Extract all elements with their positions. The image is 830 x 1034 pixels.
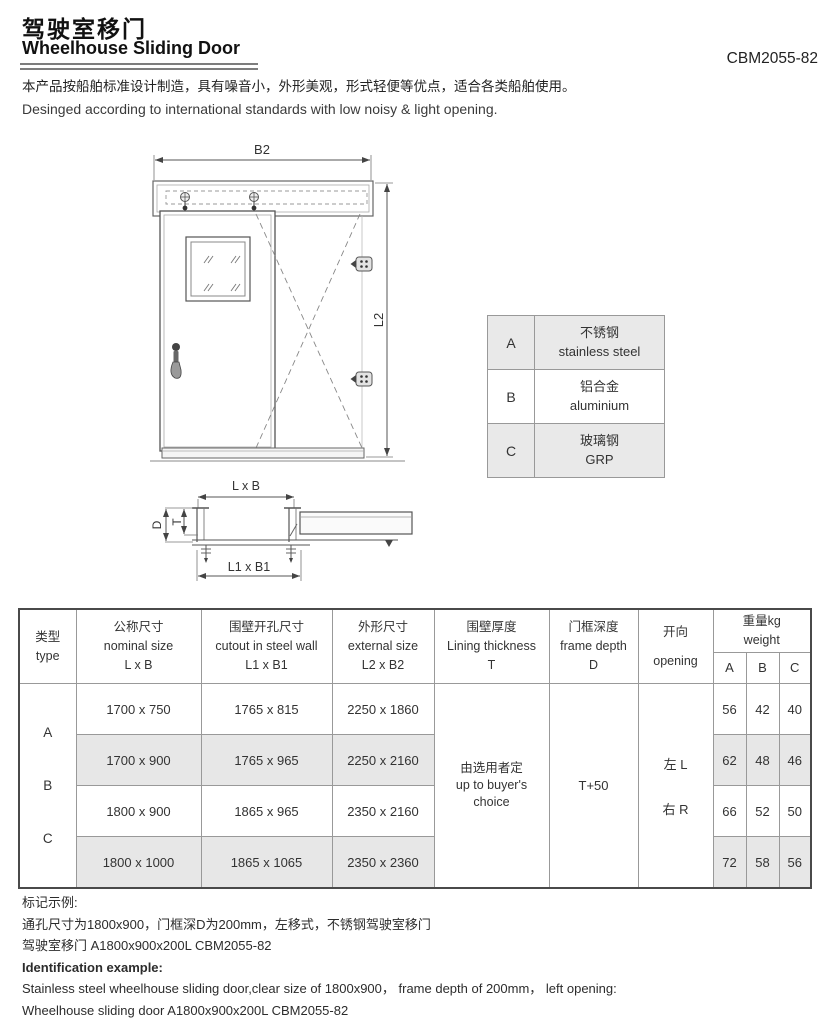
header-external-en: external size xyxy=(333,637,434,656)
header-frame-en: frame depth xyxy=(550,637,638,656)
lining-thickness-value: 由选用者定 up to buyer's choice xyxy=(434,684,549,889)
label-l1xb1: L1 x B1 xyxy=(228,560,270,574)
cutout-value: 1765 x 965 xyxy=(201,735,332,786)
material-name: 不锈钢 stainless steel xyxy=(535,316,665,370)
weight-c-value: 40 xyxy=(779,684,811,735)
model-number: CBM2055-82 xyxy=(727,50,818,68)
header-type-zh: 类型 xyxy=(20,628,76,647)
door-handle xyxy=(171,343,181,378)
weight-c-value: 56 xyxy=(779,837,811,889)
type-column: A B C xyxy=(19,684,76,889)
opening-travel-lines xyxy=(256,214,362,448)
header-lining-zh: 围壁厚度 xyxy=(435,618,549,637)
label-t: T xyxy=(170,518,184,526)
header-external-size: 外形尺寸 external size L2 x B2 xyxy=(332,609,434,684)
table-row: C 玻璃钢 GRP xyxy=(488,424,665,478)
cutout-value: 1865 x 1065 xyxy=(201,837,332,889)
material-code: A xyxy=(488,316,535,370)
glass-hatch-marks xyxy=(204,256,240,291)
type-b: B xyxy=(43,778,52,793)
example-zh-line1: 通孔尺寸为1800x900，门框深D为200mm，左移式，不锈钢驾驶室移门 xyxy=(22,914,812,936)
header-type: 类型 type xyxy=(19,609,76,684)
dimension-l2: L2 xyxy=(366,183,393,457)
lining-en1: up to buyer's xyxy=(435,777,549,794)
header-opening-zh: 开向 xyxy=(639,623,713,642)
example-en-line1: Stainless steel wheelhouse sliding door,… xyxy=(22,978,812,1000)
material-code: B xyxy=(488,370,535,424)
material-name-en: GRP xyxy=(535,451,664,470)
table-row: B 铝合金 aluminium xyxy=(488,370,665,424)
header-nominal-size: 公称尺寸 nominal size L x B xyxy=(76,609,201,684)
frame-depth-value: T+50 xyxy=(549,684,638,889)
lining-en2: choice xyxy=(435,794,549,811)
weight-a-value: 62 xyxy=(713,735,746,786)
opening-left: 左 L xyxy=(639,754,713,773)
section-view-drawing: L x B xyxy=(150,479,412,581)
header-weight-a: A xyxy=(713,653,746,684)
wall-bracket-upper xyxy=(351,257,373,271)
catalog-page: 驾驶室移门 Wheelhouse Sliding Door CBM2055-82… xyxy=(0,0,830,1034)
header-nominal-sym: L x B xyxy=(77,656,201,675)
header-weight-c: C xyxy=(779,653,811,684)
header-weight-b: B xyxy=(746,653,779,684)
material-name-en: stainless steel xyxy=(535,343,664,362)
weight-c-value: 50 xyxy=(779,786,811,837)
roller-hanger-right xyxy=(250,193,259,219)
header-frame-sym: D xyxy=(550,656,638,675)
header-lining-sym: T xyxy=(435,656,549,675)
dimension-d: D xyxy=(150,508,193,542)
dimension-b2: B2 xyxy=(154,142,371,180)
cutout-value: 1865 x 965 xyxy=(201,786,332,837)
external-size-value: 2250 x 2160 xyxy=(332,735,434,786)
lining-zh: 由选用者定 xyxy=(435,760,549,777)
header-frame-depth: 门框深度 frame depth D xyxy=(549,609,638,684)
nominal-size-value: 1800 x 900 xyxy=(76,786,201,837)
title-double-rule xyxy=(20,63,258,70)
wall-bracket-lower xyxy=(351,372,373,386)
nominal-size-value: 1700 x 900 xyxy=(76,735,201,786)
label-d: D xyxy=(150,520,164,529)
fixing-bolt-right xyxy=(286,545,296,563)
header-external-zh: 外形尺寸 xyxy=(333,618,434,637)
description-chinese: 本产品按船舶标准设计制造，具有噪音小，外形美观，形式轻便等优点，适合各类船舶使用… xyxy=(22,76,802,98)
external-size-value: 2350 x 2360 xyxy=(332,837,434,889)
product-description: 本产品按船舶标准设计制造，具有噪音小，外形美观，形式轻便等优点，适合各类船舶使用… xyxy=(22,76,802,120)
header-nominal-zh: 公称尺寸 xyxy=(77,618,201,637)
front-view-drawing: B2 xyxy=(150,142,405,461)
header-cutout-en: cutout in steel wall xyxy=(202,637,332,656)
open-door-panel-section xyxy=(300,512,412,547)
cutout-value: 1765 x 815 xyxy=(201,684,332,735)
bottom-sill xyxy=(150,448,405,461)
example-en-line2: Wheelhouse sliding door A1800x900x200L C… xyxy=(22,1000,812,1022)
header-opening-en: opening xyxy=(639,652,713,671)
example-zh-line2: 驾驶室移门 A1800x900x200L CBM2055-82 xyxy=(22,935,812,957)
header-type-en: type xyxy=(20,647,76,666)
dimension-l1xb1: L1 x B1 xyxy=(197,550,301,581)
external-size-value: 2250 x 1860 xyxy=(332,684,434,735)
dimension-lxb: L x B xyxy=(198,479,294,508)
header-lining-thickness: 围壁厚度 Lining thickness T xyxy=(434,609,549,684)
opening-value: 左 L 右 R xyxy=(638,684,713,889)
header-frame-zh: 门框深度 xyxy=(550,618,638,637)
fixing-bolt-left xyxy=(201,545,211,563)
example-en-title: Identification example: xyxy=(22,957,812,979)
weight-b-value: 52 xyxy=(746,786,779,837)
example-zh-title: 标记示例: xyxy=(22,892,812,914)
weight-c-value: 46 xyxy=(779,735,811,786)
material-name: 铝合金 aluminium xyxy=(535,370,665,424)
type-c: C xyxy=(43,831,53,846)
header-cutout: 围壁开孔尺寸 cutout in steel wall L1 x B1 xyxy=(201,609,332,684)
table-row: A B C 1700 x 750 1765 x 815 2250 x 1860 … xyxy=(19,684,811,735)
specification-table: 类型 type 公称尺寸 nominal size L x B 围壁开孔尺寸 c… xyxy=(18,608,812,889)
header-external-sym: L2 x B2 xyxy=(333,656,434,675)
weight-a-value: 56 xyxy=(713,684,746,735)
type-a: A xyxy=(43,725,52,740)
material-name: 玻璃钢 GRP xyxy=(535,424,665,478)
header-weight-en: weight xyxy=(714,631,811,650)
dimension-t: T xyxy=(170,509,198,535)
header-weight: 重量kg weight xyxy=(713,609,811,653)
frame-section xyxy=(192,508,398,545)
material-name-zh: 不锈钢 xyxy=(535,324,664,343)
label-l2: L2 xyxy=(371,313,386,327)
header-cutout-zh: 围壁开孔尺寸 xyxy=(202,618,332,637)
label-lxb: L x B xyxy=(232,479,260,493)
door-panel xyxy=(160,211,275,451)
weight-b-value: 42 xyxy=(746,684,779,735)
material-name-zh: 铝合金 xyxy=(535,378,664,397)
nominal-size-value: 1800 x 1000 xyxy=(76,837,201,889)
header-opening: 开向 opening xyxy=(638,609,713,684)
door-window xyxy=(186,237,250,301)
material-name-zh: 玻璃钢 xyxy=(535,432,664,451)
weight-a-value: 66 xyxy=(713,786,746,837)
description-english: Desinged according to international stan… xyxy=(22,98,802,120)
material-name-en: aluminium xyxy=(535,397,664,416)
material-code: C xyxy=(488,424,535,478)
material-legend-table: A 不锈钢 stainless steel B 铝合金 aluminium C … xyxy=(487,315,665,478)
top-rail xyxy=(153,181,373,216)
roller-hanger-left xyxy=(181,193,190,219)
weight-b-value: 58 xyxy=(746,837,779,889)
table-row: A 不锈钢 stainless steel xyxy=(488,316,665,370)
weight-a-value: 72 xyxy=(713,837,746,889)
label-b2: B2 xyxy=(254,142,270,157)
header-cutout-sym: L1 x B1 xyxy=(202,656,332,675)
nominal-size-value: 1700 x 750 xyxy=(76,684,201,735)
header-lining-en: Lining thickness xyxy=(435,637,549,656)
identification-example-block: 标记示例: 通孔尺寸为1800x900，门框深D为200mm，左移式，不锈钢驾驶… xyxy=(22,892,812,1021)
page-title-english: Wheelhouse Sliding Door xyxy=(22,38,240,59)
external-size-value: 2350 x 2160 xyxy=(332,786,434,837)
header-nominal-en: nominal size xyxy=(77,637,201,656)
weight-b-value: 48 xyxy=(746,735,779,786)
opening-right: 右 R xyxy=(639,799,713,818)
header-weight-zh: 重量kg xyxy=(714,612,811,631)
